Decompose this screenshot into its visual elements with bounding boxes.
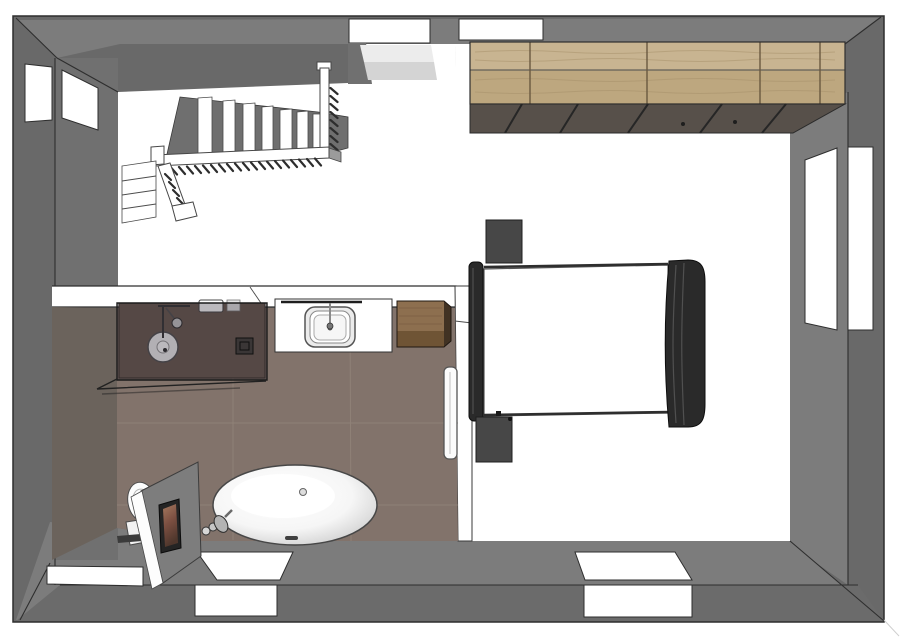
- window-reveal-lower: [364, 62, 437, 80]
- stair-lower-flight: [122, 161, 156, 223]
- wood-cabinet: [397, 301, 451, 347]
- top-wall-window-bedroom: [459, 19, 543, 40]
- shower-control-panel: [236, 338, 253, 354]
- top-wall-window-staircase: [349, 19, 430, 43]
- wardrobe-top-face: [470, 42, 845, 70]
- bed-mattress: [484, 265, 671, 416]
- double-bed: [469, 260, 705, 427]
- wardrobe-front-face: [470, 70, 845, 104]
- bathtub: [213, 465, 377, 545]
- southwest-niche: [47, 566, 143, 586]
- bathroom-south-window-exterior: [195, 585, 277, 616]
- cabinet-side: [444, 301, 451, 347]
- bathtub-drain: [285, 536, 298, 540]
- window-reveal-upper: [360, 45, 434, 62]
- bedroom-south-window-exterior: [584, 585, 692, 617]
- nightstand-bottom: [476, 417, 512, 462]
- bed-footboard: [469, 262, 483, 421]
- track-stop-dot: [681, 122, 685, 126]
- bathtub-inner-highlight: [231, 474, 335, 518]
- nightstand-top: [486, 220, 522, 263]
- wardrobe: [470, 42, 845, 133]
- corner-artifact-line: [884, 620, 899, 636]
- basin-faucet-base: [327, 323, 333, 329]
- right-wall-window-outer: [848, 147, 873, 330]
- bed-frame-nub: [496, 411, 501, 416]
- bathtub-overflow: [300, 489, 307, 496]
- bed-headboard: [665, 260, 705, 427]
- bottom-wall-outer-face: [16, 585, 884, 621]
- railing-post-vertical: [320, 68, 329, 148]
- washbasin-vanity: [275, 299, 392, 352]
- nightstand-knob: [508, 417, 512, 421]
- track-stop-dot: [733, 120, 737, 124]
- picture-image: [163, 504, 178, 547]
- left-wall-window-outer: [25, 64, 52, 122]
- bathroom-west-wall-face: [52, 307, 117, 560]
- wardrobe-sliding-track: [470, 104, 845, 133]
- shower: [97, 300, 267, 394]
- floor-plan-rendering: [0, 0, 900, 639]
- bedroom-south-window: [575, 552, 692, 580]
- right-wall-window-inner: [805, 148, 837, 330]
- bedroom: [455, 42, 845, 541]
- floor-plan-svg: [0, 0, 900, 639]
- cabinet-front: [397, 331, 444, 347]
